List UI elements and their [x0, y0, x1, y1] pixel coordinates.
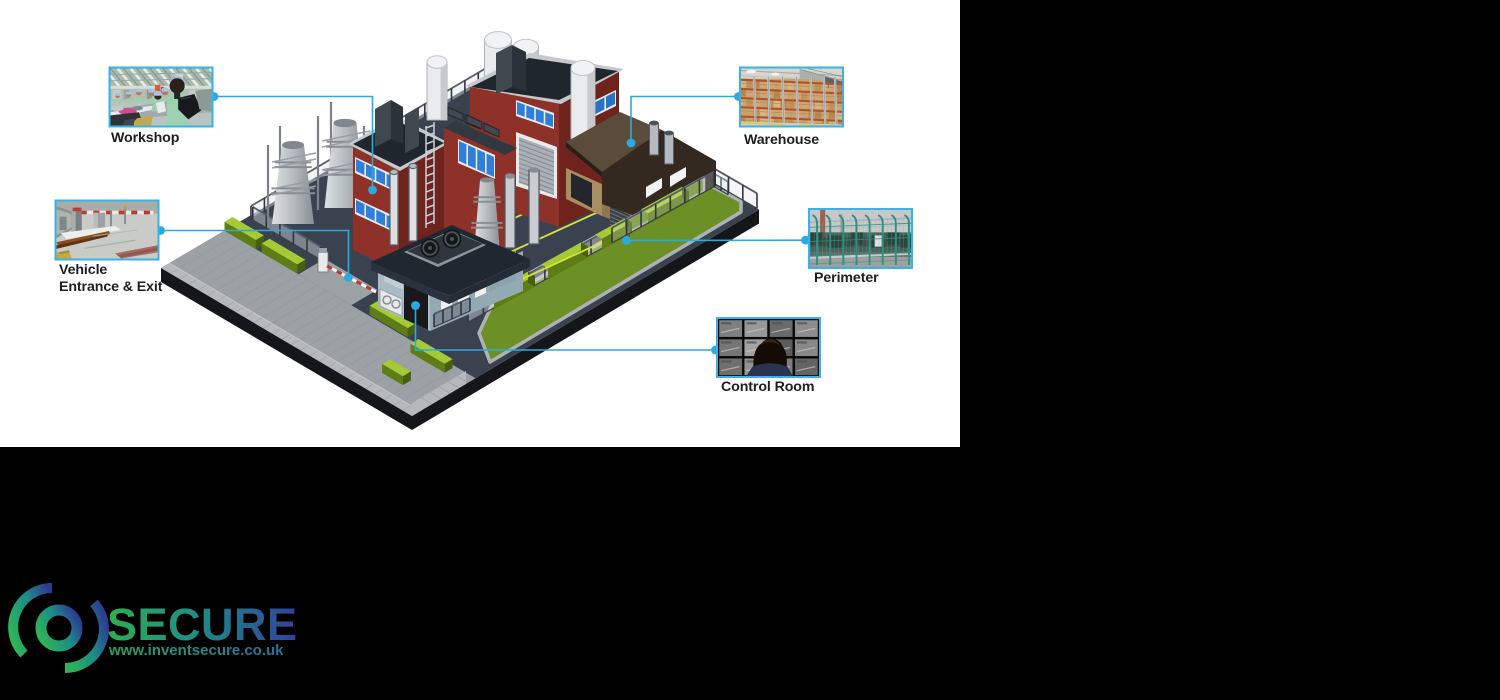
svg-text:www.inventsecure.co.uk: www.inventsecure.co.uk — [108, 642, 284, 659]
svg-text:Workshop: Workshop — [111, 130, 180, 146]
svg-text:Warehouse: Warehouse — [744, 132, 819, 148]
svg-text:Entrance & Exit: Entrance & Exit — [59, 279, 163, 295]
svg-text:Vehicle: Vehicle — [59, 262, 107, 278]
svg-text:Control Room: Control Room — [721, 379, 814, 395]
svg-text:Perimeter: Perimeter — [814, 270, 879, 286]
